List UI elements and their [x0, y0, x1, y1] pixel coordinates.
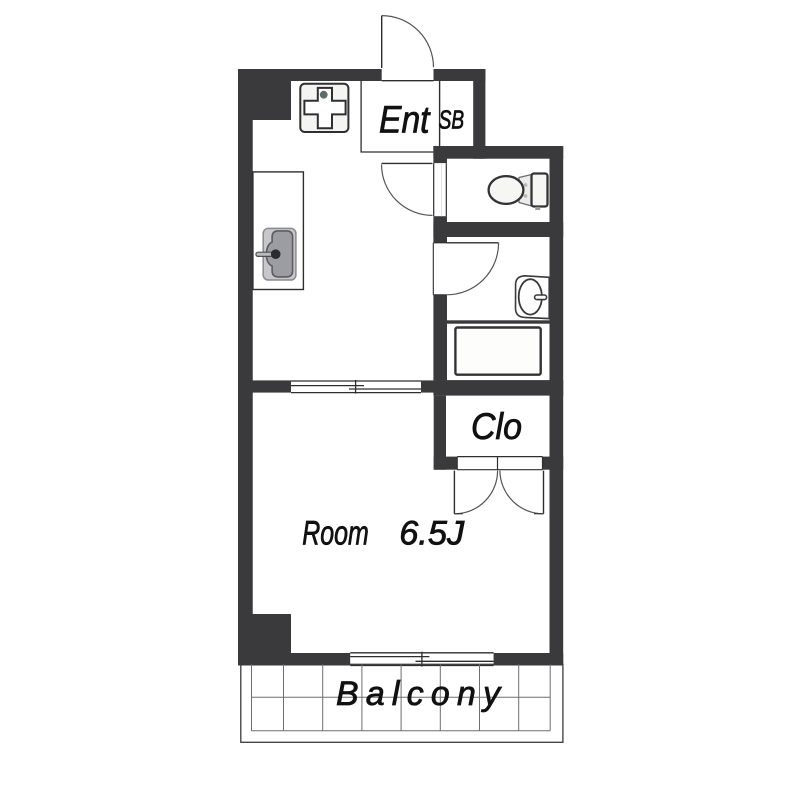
svg-text:Clo: Clo [471, 405, 522, 447]
svg-text:Room: Room [302, 514, 369, 552]
svg-text:Ent: Ent [379, 99, 431, 142]
svg-text:SB: SB [439, 105, 465, 135]
svg-text:6.5J: 6.5J [399, 514, 465, 552]
svg-text:Balcony: Balcony [336, 675, 502, 713]
